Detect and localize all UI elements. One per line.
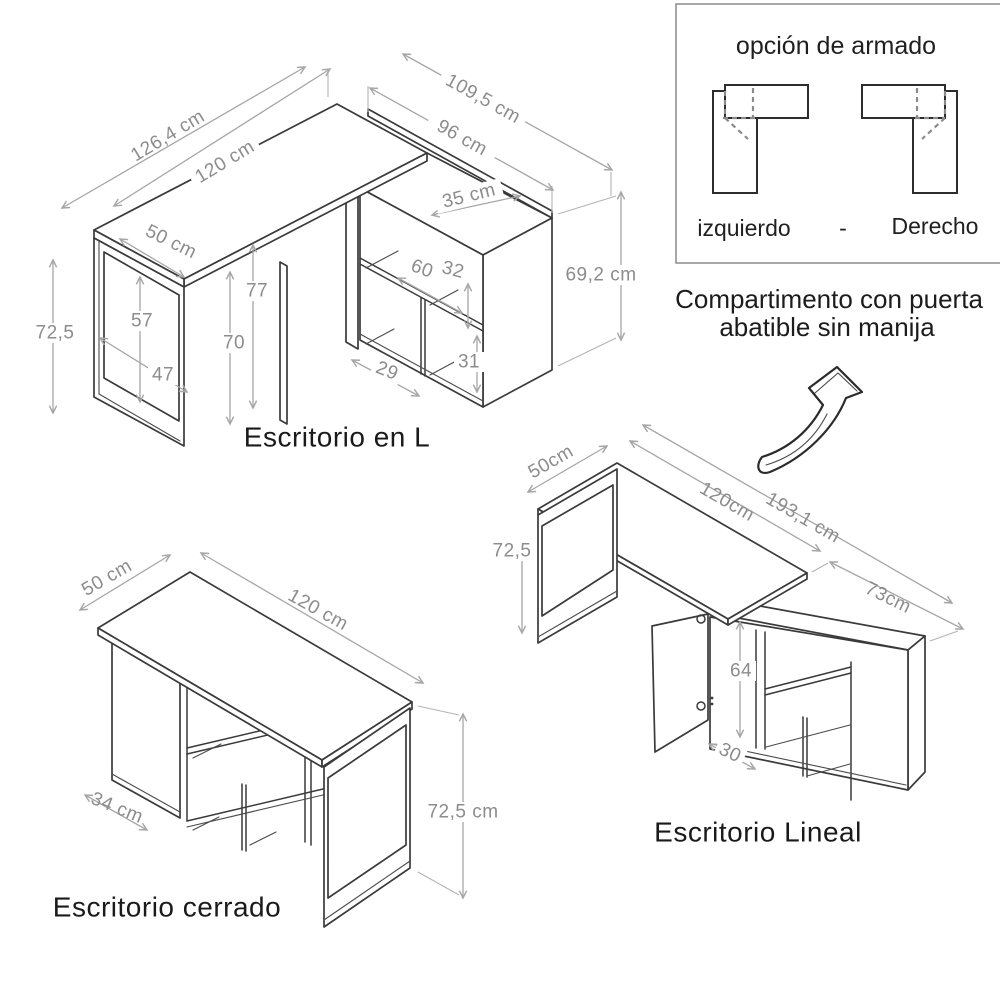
assembly-right-shape [862, 85, 957, 193]
furniture-technical-drawing: 126,4 cm 120 cm 109,5 cm 96 cm 35 cm 50 … [0, 0, 1000, 1000]
dim-cerrado-height: 72,5 cm [420, 802, 506, 823]
dim-l-clearance: 70 [219, 333, 249, 354]
dim-l-leg-inner-height: 57 [127, 311, 157, 332]
svg-text:77: 77 [246, 281, 268, 302]
lineal-cabinet-side [908, 636, 925, 790]
dim-l-cubby-height: 31 [454, 352, 484, 373]
svg-text:73cm: 73cm [862, 578, 915, 618]
assembly-left-shape [713, 85, 808, 193]
note-line2: abatible sin manija [719, 312, 935, 342]
lineal-desk-title: Escritorio Lineal [654, 817, 862, 848]
door-note: Compartimento con puerta abatible sin ma… [675, 284, 983, 342]
svg-text:72,5: 72,5 [493, 541, 532, 562]
cerrado-desk-drawing [98, 572, 412, 927]
assembly-right-label: Derecho [892, 213, 979, 239]
svg-text:72,5: 72,5 [36, 323, 75, 344]
assembly-panel-title: opción de armado [736, 32, 936, 60]
svg-text:109,5 cm: 109,5 cm [442, 70, 524, 128]
svg-text:64: 64 [730, 661, 752, 682]
lineal-leg-frame [538, 469, 617, 643]
dim-lineal-overall-length: 193,1 cm [762, 488, 844, 547]
l-desk-title: Escritorio en L [244, 422, 430, 453]
svg-text:57: 57 [131, 311, 153, 332]
screw-dot-icon [711, 703, 714, 706]
svg-text:50cm: 50cm [525, 441, 577, 483]
l-desk-mid-support-panel [280, 262, 287, 424]
svg-text:47: 47 [152, 365, 174, 386]
svg-text:72,5 cm: 72,5 cm [427, 802, 498, 823]
svg-text:126,4 cm: 126,4 cm [127, 106, 208, 166]
dim-l-leg-inner-width: 47 [148, 365, 178, 386]
assembly-panel: opción de armado izquierdo - Derecho [676, 4, 1000, 263]
dim-l-overall-length: 126,4 cm [127, 106, 208, 166]
cabinet-door [652, 614, 713, 752]
assembly-left-label: izquierdo [697, 215, 790, 241]
dim-lineal-door-height: 64 [726, 661, 756, 682]
dim-lineal-depth: 50cm [525, 441, 577, 483]
dim-lineal-cabinet-length: 73cm [862, 578, 915, 618]
svg-text:120 cm: 120 cm [284, 585, 351, 635]
svg-text:31: 31 [458, 352, 480, 373]
dim-cerrado-length: 120 cm [284, 585, 351, 635]
svg-text:69,2 cm: 69,2 cm [565, 265, 636, 286]
dim-l-height: 72,5 [32, 323, 78, 344]
drawing-canvas: 126,4 cm 120 cm 109,5 cm 96 cm 35 cm 50 … [0, 0, 1000, 1000]
svg-text:193,1 cm: 193,1 cm [762, 488, 844, 547]
cerrado-desk-title: Escritorio cerrado [53, 892, 281, 923]
note-line1: Compartimento con puerta [675, 284, 983, 314]
assembly-separator: - [839, 215, 847, 241]
screw-dot-icon [711, 697, 714, 700]
svg-text:70: 70 [223, 333, 245, 354]
dim-l-under-height: 77 [242, 281, 272, 302]
dim-l-cabinet-height: 69,2 cm [559, 265, 643, 286]
l-desk-cabinet-left-panel [346, 190, 358, 349]
curved-arrow-icon [758, 367, 862, 473]
dim-lineal-height: 72,5 [489, 541, 535, 562]
